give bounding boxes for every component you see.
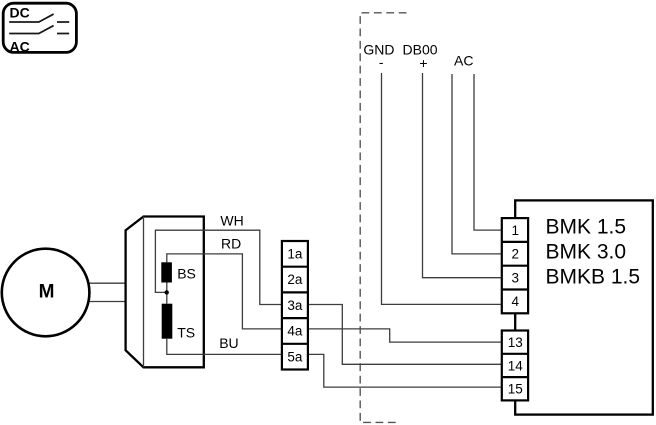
- svg-text:M: M: [39, 281, 55, 302]
- svg-text:+: +: [419, 55, 427, 71]
- svg-text:DC: DC: [10, 5, 30, 21]
- svg-text:14: 14: [508, 358, 524, 373]
- svg-text:BMKB 1.5: BMKB 1.5: [546, 266, 641, 289]
- svg-text:5a: 5a: [287, 349, 303, 364]
- svg-text:13: 13: [508, 335, 523, 350]
- svg-text:-: -: [379, 54, 384, 70]
- svg-text:RD: RD: [221, 235, 241, 251]
- svg-text:AC: AC: [454, 52, 473, 68]
- svg-text:4a: 4a: [287, 324, 303, 339]
- svg-text:1a: 1a: [287, 247, 303, 262]
- svg-text:1: 1: [512, 223, 520, 238]
- svg-text:TS: TS: [177, 325, 195, 341]
- svg-text:BMK 1.5: BMK 1.5: [546, 216, 627, 239]
- svg-text:3: 3: [512, 270, 520, 285]
- svg-text:2a: 2a: [287, 272, 303, 287]
- svg-text:BS: BS: [177, 265, 196, 281]
- svg-text:BMK 3.0: BMK 3.0: [546, 241, 627, 264]
- svg-text:4: 4: [512, 294, 520, 309]
- svg-text:WH: WH: [220, 213, 243, 229]
- svg-text:BU: BU: [219, 335, 238, 351]
- svg-text:3a: 3a: [287, 298, 303, 313]
- svg-text:2: 2: [512, 247, 520, 262]
- svg-text:AC: AC: [10, 38, 30, 54]
- svg-text:15: 15: [508, 382, 523, 397]
